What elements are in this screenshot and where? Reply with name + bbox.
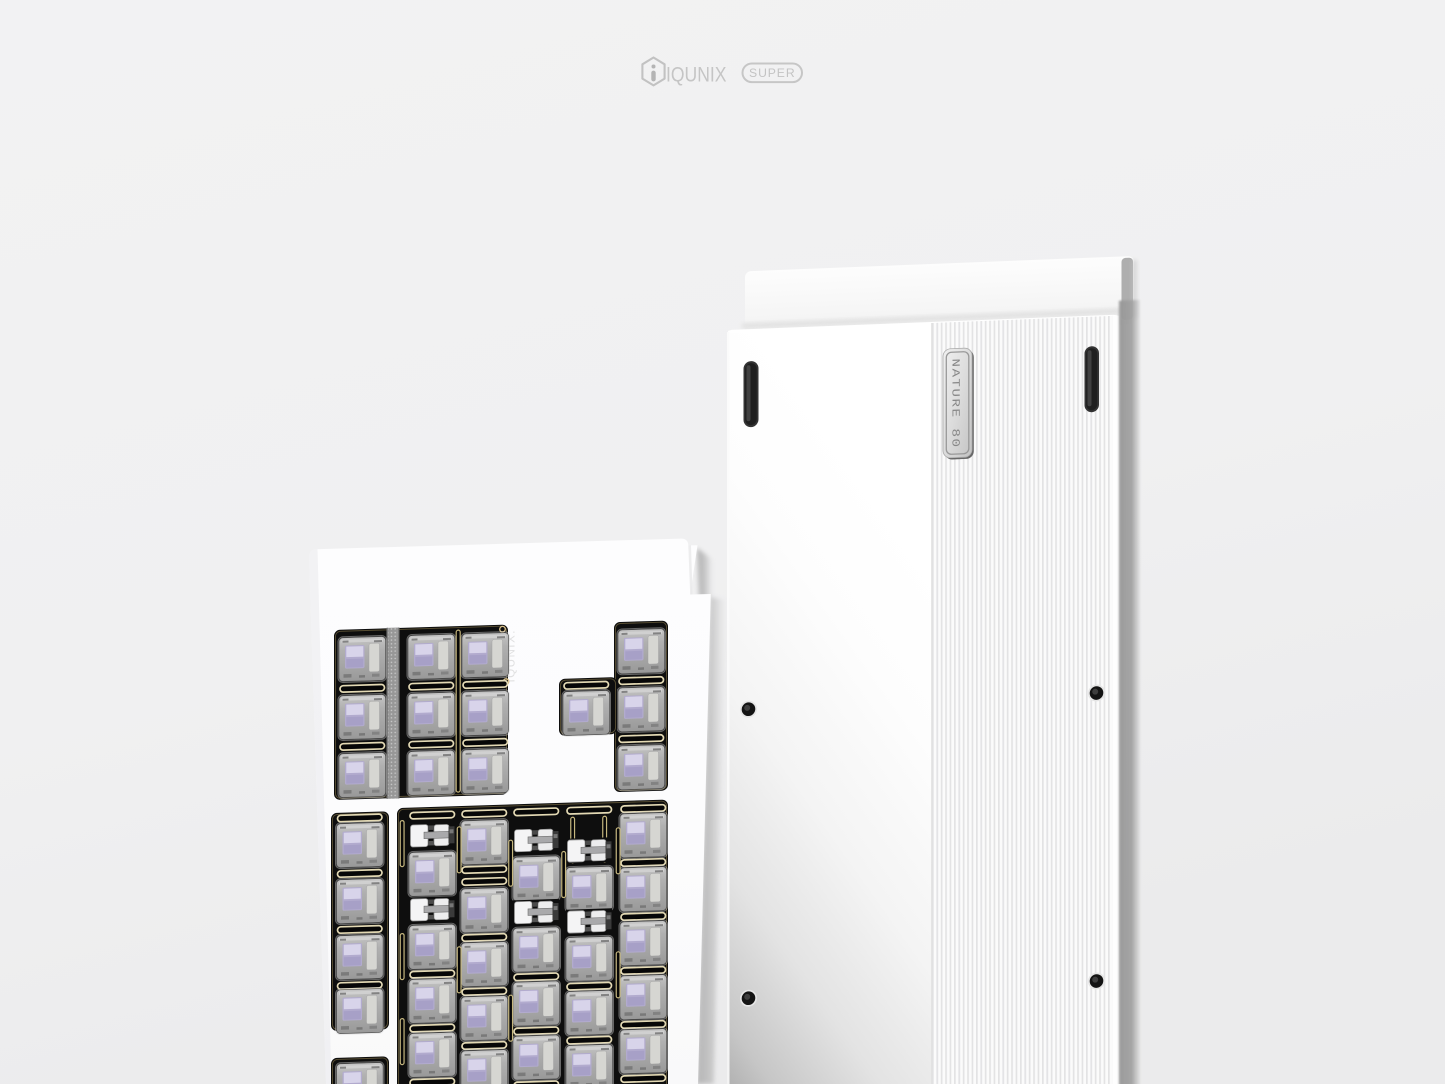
svg-text:NATURE 80: NATURE 80 <box>949 358 961 448</box>
svg-text:IQUNIX: IQUNIX <box>666 63 727 87</box>
svg-text:SUPER: SUPER <box>749 66 796 80</box>
